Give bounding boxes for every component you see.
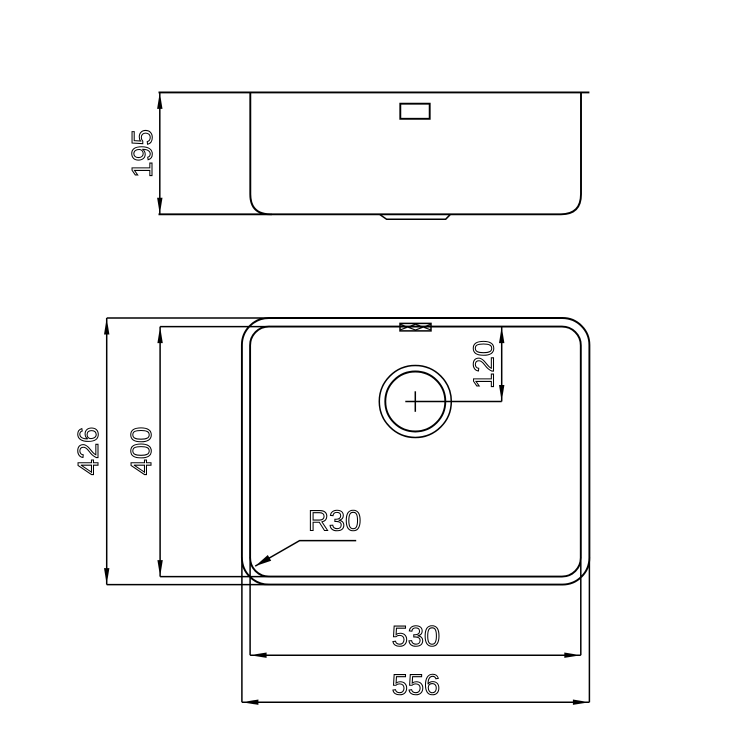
svg-text:556: 556 xyxy=(392,669,440,701)
svg-text:R30: R30 xyxy=(308,506,361,538)
svg-text:400: 400 xyxy=(126,427,158,475)
svg-text:530: 530 xyxy=(392,621,440,653)
svg-text:426: 426 xyxy=(73,427,105,475)
svg-text:195: 195 xyxy=(127,129,159,177)
svg-text:120: 120 xyxy=(469,340,501,388)
